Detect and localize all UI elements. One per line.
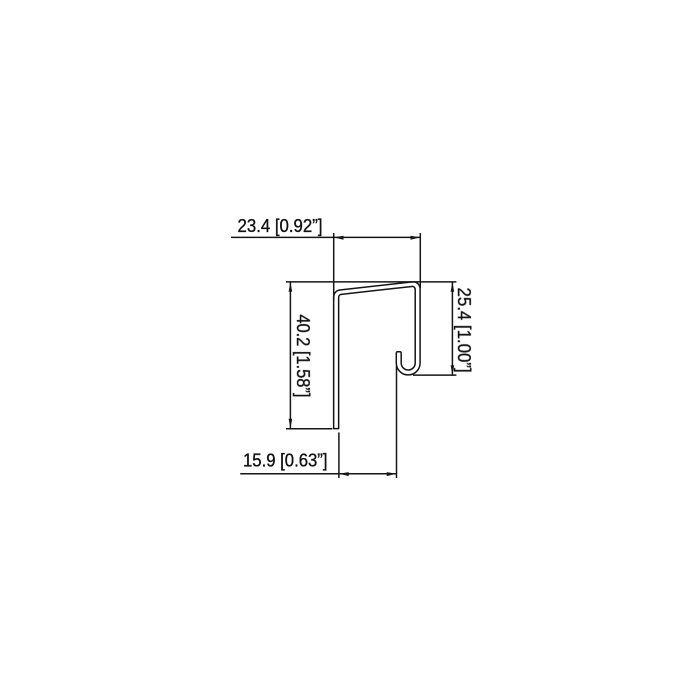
svg-text:15.9 [0.63”]: 15.9 [0.63”] <box>243 449 328 470</box>
svg-text:23.4 [0.92”]: 23.4 [0.92”] <box>238 215 323 236</box>
svg-text:25.4 [1.00”]: 25.4 [1.00”] <box>454 288 475 373</box>
svg-text:40.2 [1.58”]: 40.2 [1.58”] <box>293 314 314 397</box>
